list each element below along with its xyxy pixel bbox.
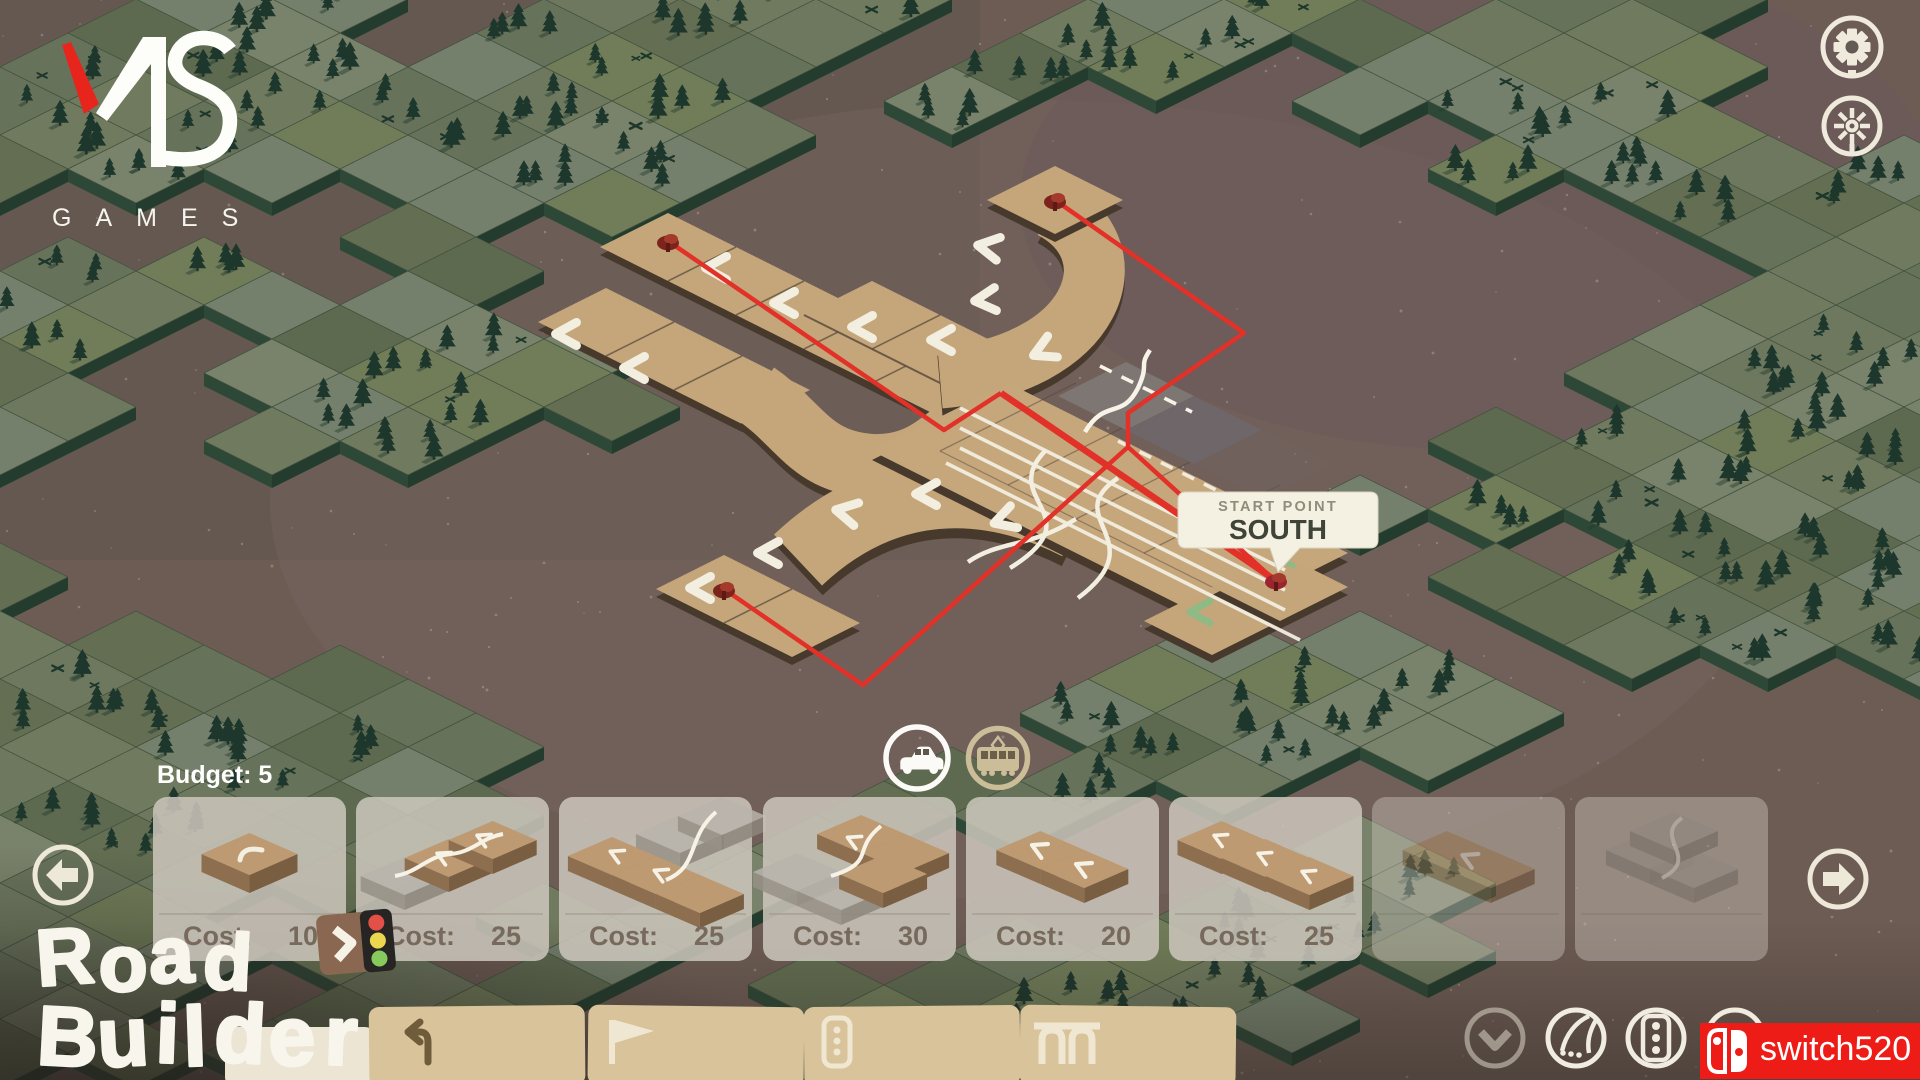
svg-text:i: i [154,986,181,1080]
svg-text:u: u [95,988,151,1080]
svg-text:Budget: 5: Budget: 5 [157,761,272,789]
svg-text:l: l [181,989,208,1080]
svg-text:d: d [212,985,268,1080]
svg-text:25: 25 [1304,921,1334,951]
svg-text:Cost:: Cost: [793,921,862,951]
svg-text:25: 25 [491,921,521,951]
svg-text:25: 25 [694,921,724,951]
svg-text:Cost:: Cost: [386,921,455,951]
svg-text:START POINT: START POINT [1218,499,1338,515]
svg-text:Cost:: Cost: [589,921,658,951]
svg-text:B: B [35,988,101,1080]
svg-text:30: 30 [898,921,928,951]
svg-text:20: 20 [1101,921,1131,951]
svg-text:e: e [267,988,317,1080]
svg-text:r: r [323,988,359,1080]
svg-text:Cost:: Cost: [996,921,1065,951]
svg-text:Cost:: Cost: [1199,921,1268,951]
svg-text:switch520: switch520 [1760,1030,1911,1068]
svg-text:GAMES: GAMES [52,204,262,232]
svg-text:10: 10 [288,921,318,951]
